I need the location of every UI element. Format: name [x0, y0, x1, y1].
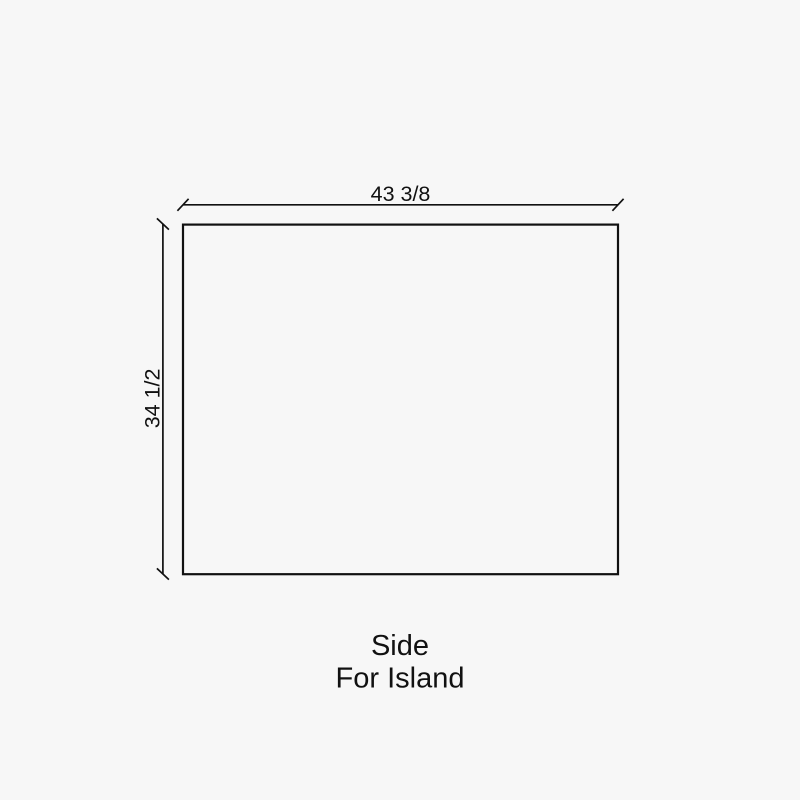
svg-text:For Island: For Island — [336, 663, 465, 695]
svg-text:43 3/8: 43 3/8 — [371, 182, 431, 206]
svg-text:34 1/2: 34 1/2 — [140, 369, 164, 429]
svg-text:Side: Side — [371, 630, 429, 662]
